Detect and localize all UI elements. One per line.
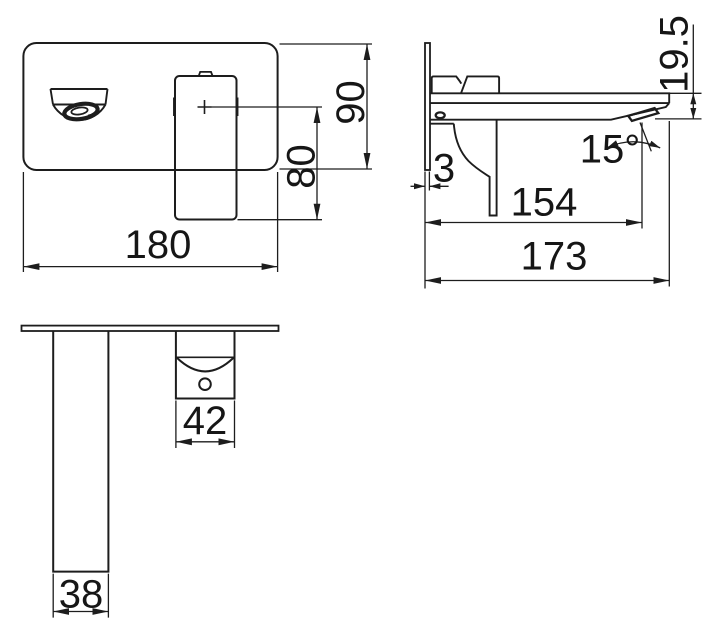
handle-plan bbox=[176, 331, 235, 399]
technical-drawing: 180 90 80 bbox=[0, 0, 720, 638]
spout-front bbox=[51, 89, 108, 121]
dim-label-90: 90 bbox=[329, 80, 373, 125]
handle-front bbox=[174, 72, 238, 220]
dim-label-80: 80 bbox=[280, 144, 324, 189]
dim-label-38: 38 bbox=[59, 573, 104, 617]
front-view: 180 90 80 bbox=[23, 43, 373, 272]
dim-label-180: 180 bbox=[125, 223, 192, 267]
bottom-view: 42 38 bbox=[22, 326, 279, 618]
dim-handle-width: 42 bbox=[176, 399, 235, 448]
dim-label-173: 173 bbox=[521, 235, 588, 279]
center-mark bbox=[198, 100, 212, 114]
dim-label-19-5: 19.5 bbox=[653, 15, 697, 93]
handle-hole bbox=[199, 378, 211, 390]
dim-label-42: 42 bbox=[183, 399, 228, 443]
handle-side bbox=[432, 76, 499, 93]
dim-handle-height: 80 bbox=[212, 107, 324, 220]
dim-label-154: 154 bbox=[511, 181, 578, 225]
dim-label-3: 3 bbox=[433, 147, 455, 191]
wall-plate-plan bbox=[22, 326, 279, 331]
spout-plan bbox=[53, 331, 108, 572]
wall-plate-side bbox=[425, 43, 430, 170]
dim-plate-thickness: 3 bbox=[411, 147, 456, 289]
dim-spout-width: 38 bbox=[53, 573, 108, 618]
side-view: 3 19.5 15° 154 173 bbox=[411, 15, 702, 288]
spout-side bbox=[430, 93, 669, 121]
dim-label-15deg: 15° bbox=[580, 128, 641, 172]
lever-curve-plan bbox=[177, 358, 233, 372]
dim-plate-width: 180 bbox=[23, 172, 277, 272]
screw-hole bbox=[436, 112, 445, 118]
dim-spout-angle: 15° bbox=[580, 123, 660, 172]
